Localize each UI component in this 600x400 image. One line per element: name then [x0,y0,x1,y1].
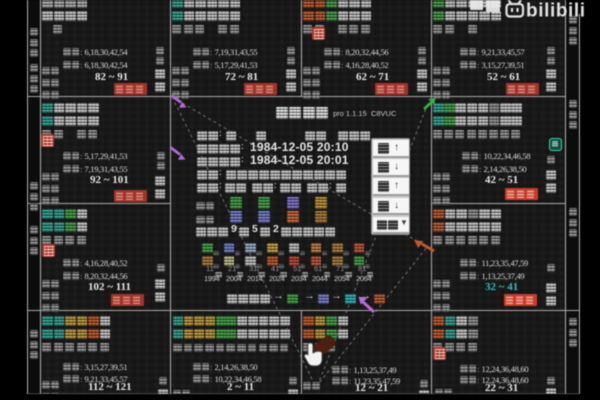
svg-text:bilibili: bilibili [526,1,586,22]
